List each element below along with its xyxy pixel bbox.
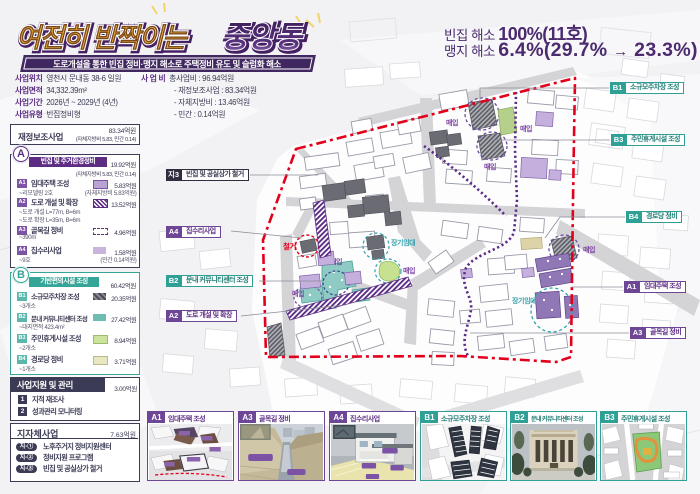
svg-text:매입: 매입 (403, 266, 415, 275)
svg-text:장기임대: 장기임대 (391, 238, 415, 247)
svg-text:매입: 매입 (583, 245, 595, 254)
svg-text:매입: 매입 (292, 289, 304, 298)
svg-text:여전히 반짝이는: 여전히 반짝이는 (16, 23, 189, 53)
svg-text:매입: 매입 (484, 162, 496, 171)
svg-text:장기임대: 장기임대 (512, 296, 536, 305)
svg-text:매입: 매입 (446, 118, 458, 127)
svg-text:중앙동: 중앙동 (221, 21, 304, 54)
svg-text:철거: 철거 (283, 241, 296, 251)
svg-text:매입: 매입 (520, 124, 532, 133)
